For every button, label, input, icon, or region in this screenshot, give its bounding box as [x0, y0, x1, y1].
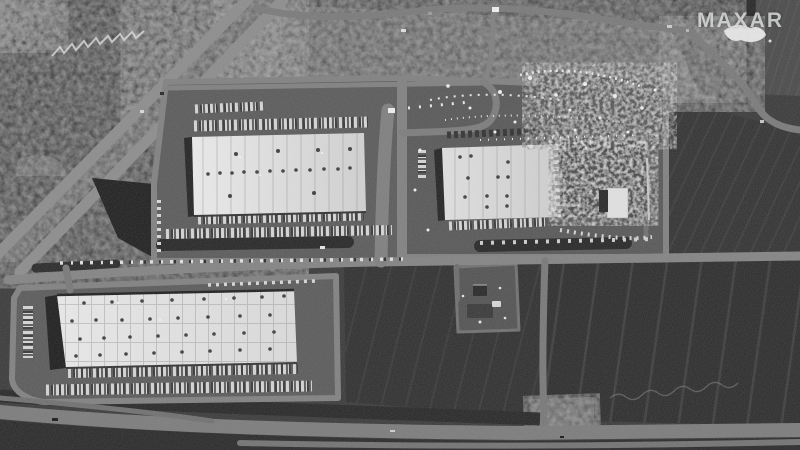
satellite-image: MAXAR	[0, 0, 800, 450]
satellite-scene	[0, 0, 800, 450]
film-grain-overlay	[0, 0, 800, 450]
maxar-watermark: MAXAR	[697, 9, 784, 33]
